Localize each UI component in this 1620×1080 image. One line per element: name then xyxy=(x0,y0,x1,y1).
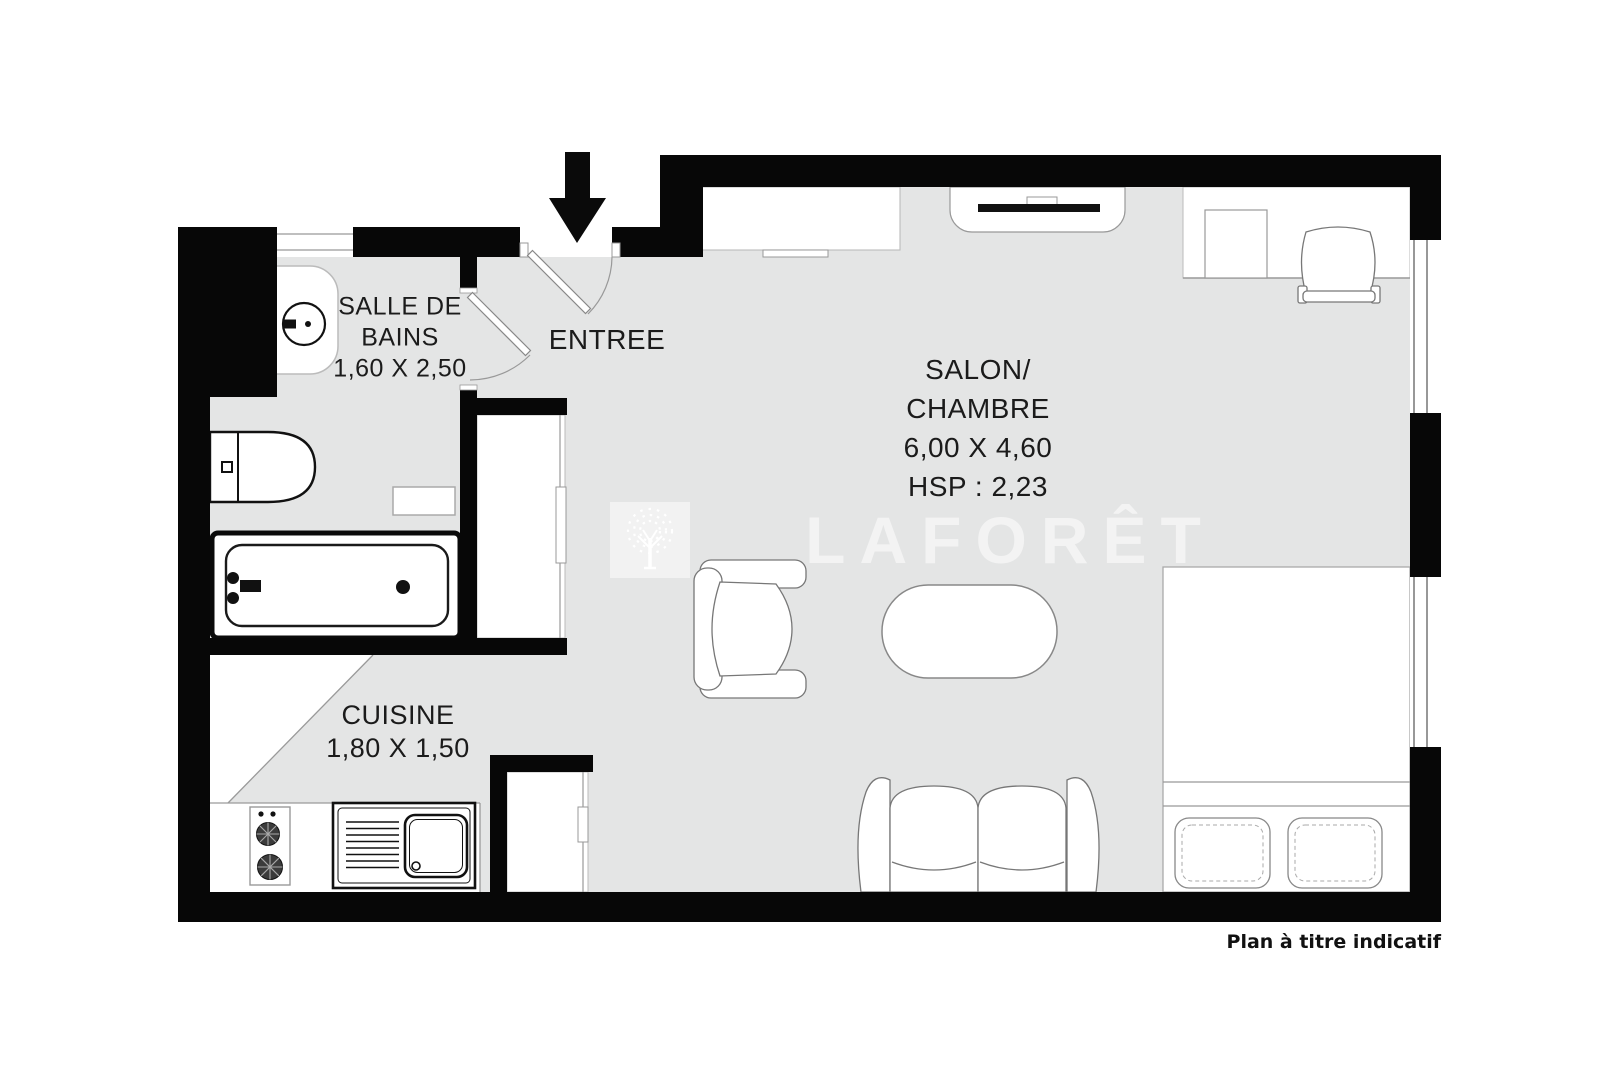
hall-closet xyxy=(700,187,900,257)
desk-chair xyxy=(1298,227,1380,303)
entry-name: ENTREE xyxy=(549,324,666,356)
fireplace xyxy=(950,187,1125,232)
living-label: SALON/ CHAMBRE 6,00 X 4,60 HSP : 2,23 xyxy=(904,350,1053,506)
bathroom-dimensions: 1,60 X 2,50 xyxy=(333,354,466,385)
desk-unit xyxy=(1205,210,1267,278)
pillow xyxy=(1288,818,1382,888)
entry-wardrobe xyxy=(477,415,566,638)
living-ceiling-height: HSP : 2,23 xyxy=(904,467,1053,506)
floorplan-canvas: LAFORÊT xyxy=(0,0,1620,1080)
refrigerator-closet xyxy=(507,772,588,892)
bathroom-name-line2: BAINS xyxy=(333,323,466,354)
window xyxy=(1410,577,1441,747)
laforet-tree-logo xyxy=(610,502,690,578)
armchair xyxy=(694,560,806,698)
exterior-zone xyxy=(170,138,673,227)
window xyxy=(1410,240,1441,413)
kitchen-label: CUISINE 1,80 X 1,50 xyxy=(326,699,470,765)
washbasin xyxy=(272,266,338,374)
floorplan-drawing: LAFORÊT xyxy=(0,0,1620,1080)
kitchen-dimensions: 1,80 X 1,50 xyxy=(326,732,470,765)
entry-label: ENTREE xyxy=(549,324,666,356)
kitchen-sink xyxy=(333,803,475,888)
window xyxy=(277,227,353,257)
double-bed xyxy=(1163,567,1410,892)
toilet xyxy=(210,432,315,502)
watermark-brand-text: LAFORÊT xyxy=(805,503,1215,577)
living-name-line2: CHAMBRE xyxy=(904,389,1053,428)
living-dimensions: 6,00 X 4,60 xyxy=(904,428,1053,467)
bathroom-shelf xyxy=(393,487,455,515)
bathroom-name-line1: SALLE DE xyxy=(333,292,466,323)
desk xyxy=(1183,187,1410,278)
bathroom-label: SALLE DE BAINS 1,60 X 2,50 xyxy=(333,292,466,385)
stove xyxy=(250,807,290,885)
pillow xyxy=(1175,818,1270,888)
bathtub xyxy=(212,533,460,638)
coffee-table xyxy=(882,585,1057,678)
living-name-line1: SALON/ xyxy=(904,350,1053,389)
plan-disclaimer: Plan à titre indicatif xyxy=(1227,931,1441,953)
kitchen-name: CUISINE xyxy=(326,699,470,732)
